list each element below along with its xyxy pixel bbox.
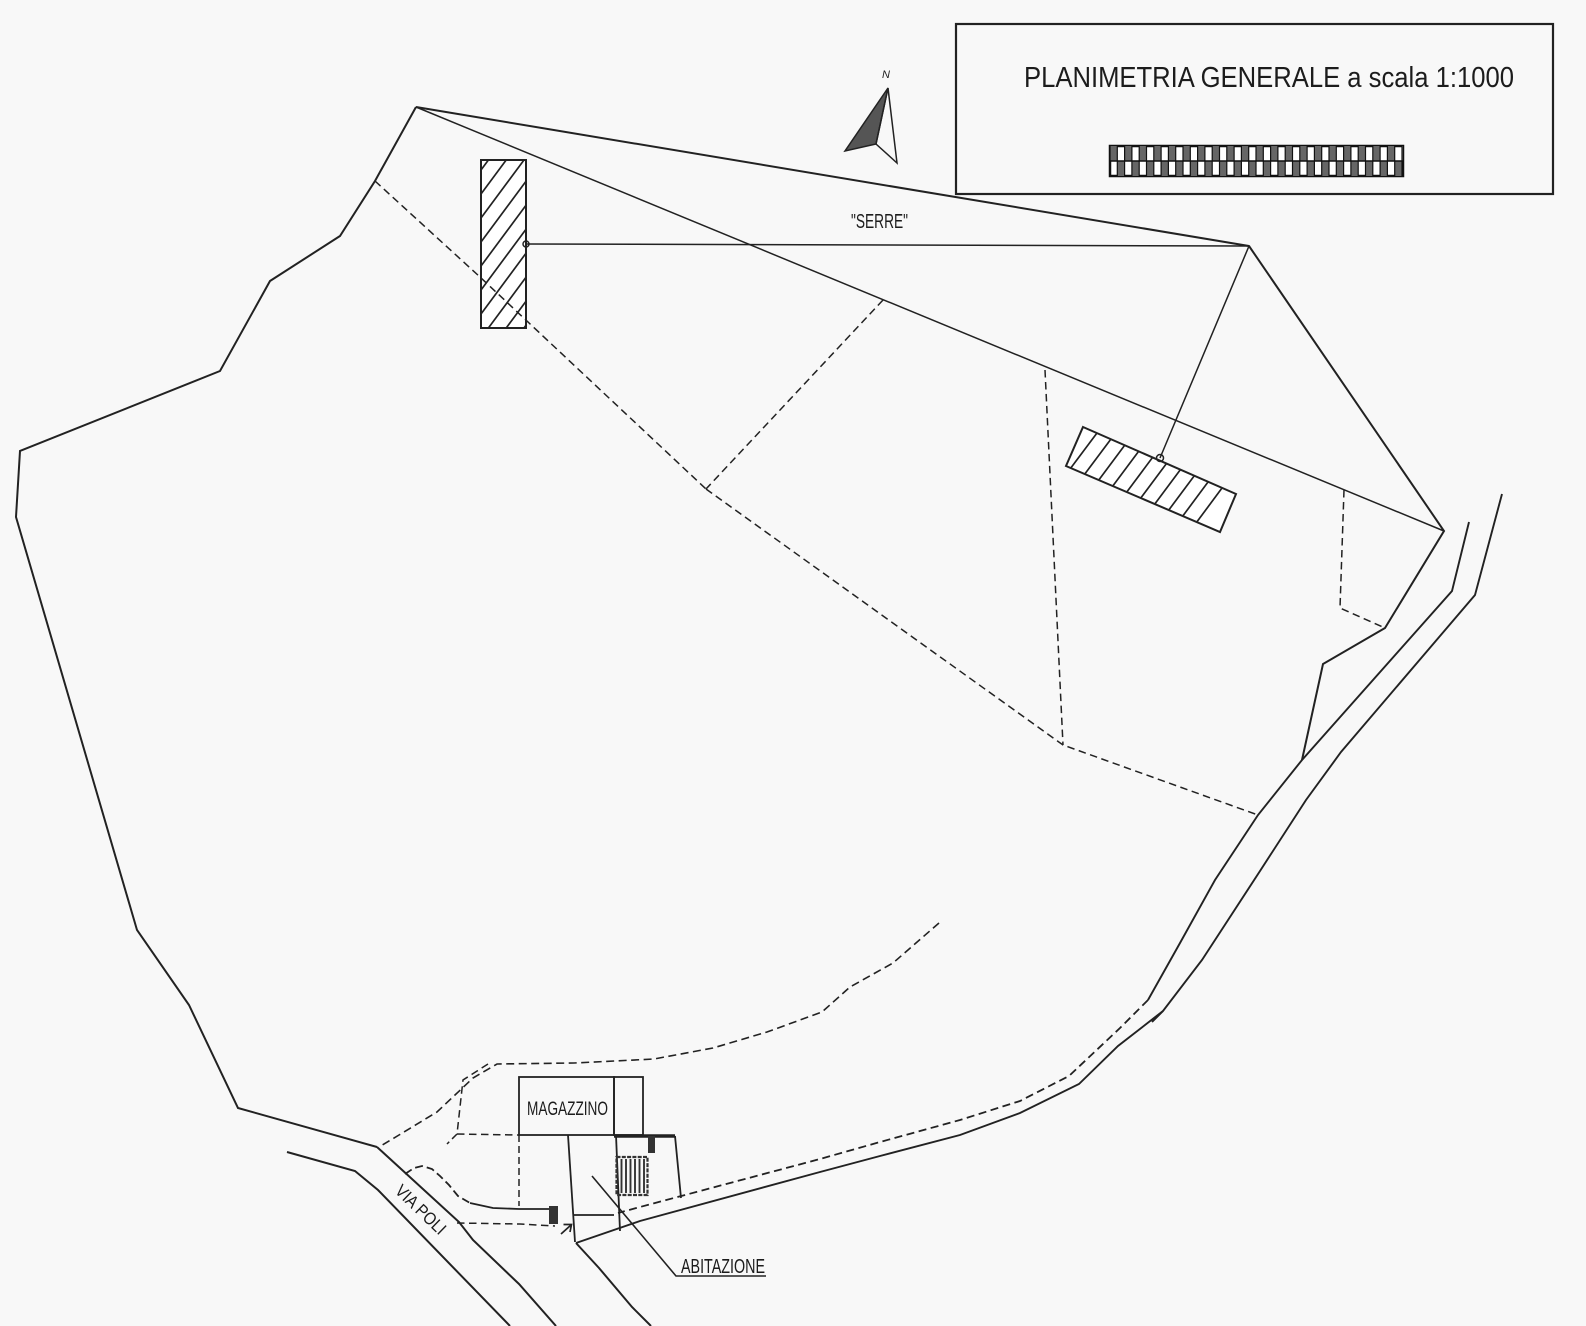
- svg-text:N: N: [882, 69, 890, 81]
- svg-text:"SERRE": "SERRE": [851, 211, 908, 233]
- svg-text:VIA POLI: VIA POLI: [391, 1180, 450, 1238]
- svg-text:MAGAZZINO: MAGAZZINO: [527, 1099, 608, 1120]
- svg-text:PLANIMETRIA GENERALE a scala 1: PLANIMETRIA GENERALE a scala 1:1000: [1024, 62, 1514, 94]
- svg-text:ABITAZIONE: ABITAZIONE: [681, 1256, 765, 1278]
